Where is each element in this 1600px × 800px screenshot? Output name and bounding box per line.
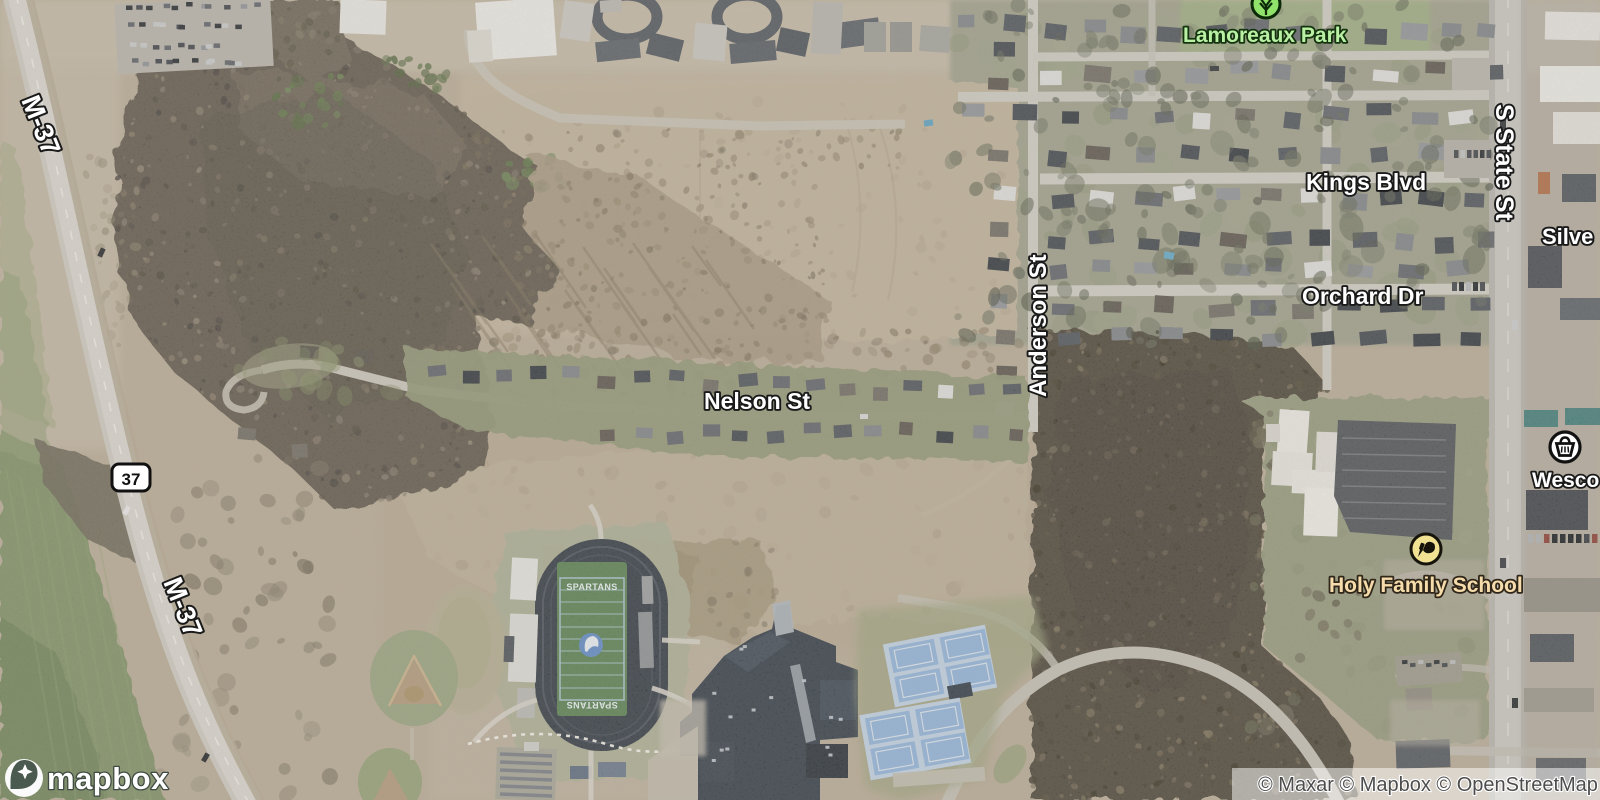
svg-text:Orchard Dr: Orchard Dr <box>1302 283 1423 309</box>
svg-text:Kings Blvd: Kings Blvd <box>1306 169 1426 195</box>
svg-text:Anderson St: Anderson St <box>1025 254 1052 397</box>
svg-text:37: 37 <box>122 470 141 489</box>
svg-text:Wesco: Wesco <box>1532 469 1599 492</box>
svg-text:Silve: Silve <box>1542 224 1593 249</box>
svg-text:© Maxar © Mapbox © OpenStreetM: © Maxar © Mapbox © OpenStreetMap <box>1258 774 1598 796</box>
svg-text:S State St: S State St <box>1490 104 1518 221</box>
svg-text:mapbox: mapbox <box>47 761 169 796</box>
svg-text:Lamoreaux Park: Lamoreaux Park <box>1183 24 1347 47</box>
svg-text:Nelson St: Nelson St <box>704 388 810 414</box>
svg-text:Holy Family School: Holy Family School <box>1329 574 1523 597</box>
